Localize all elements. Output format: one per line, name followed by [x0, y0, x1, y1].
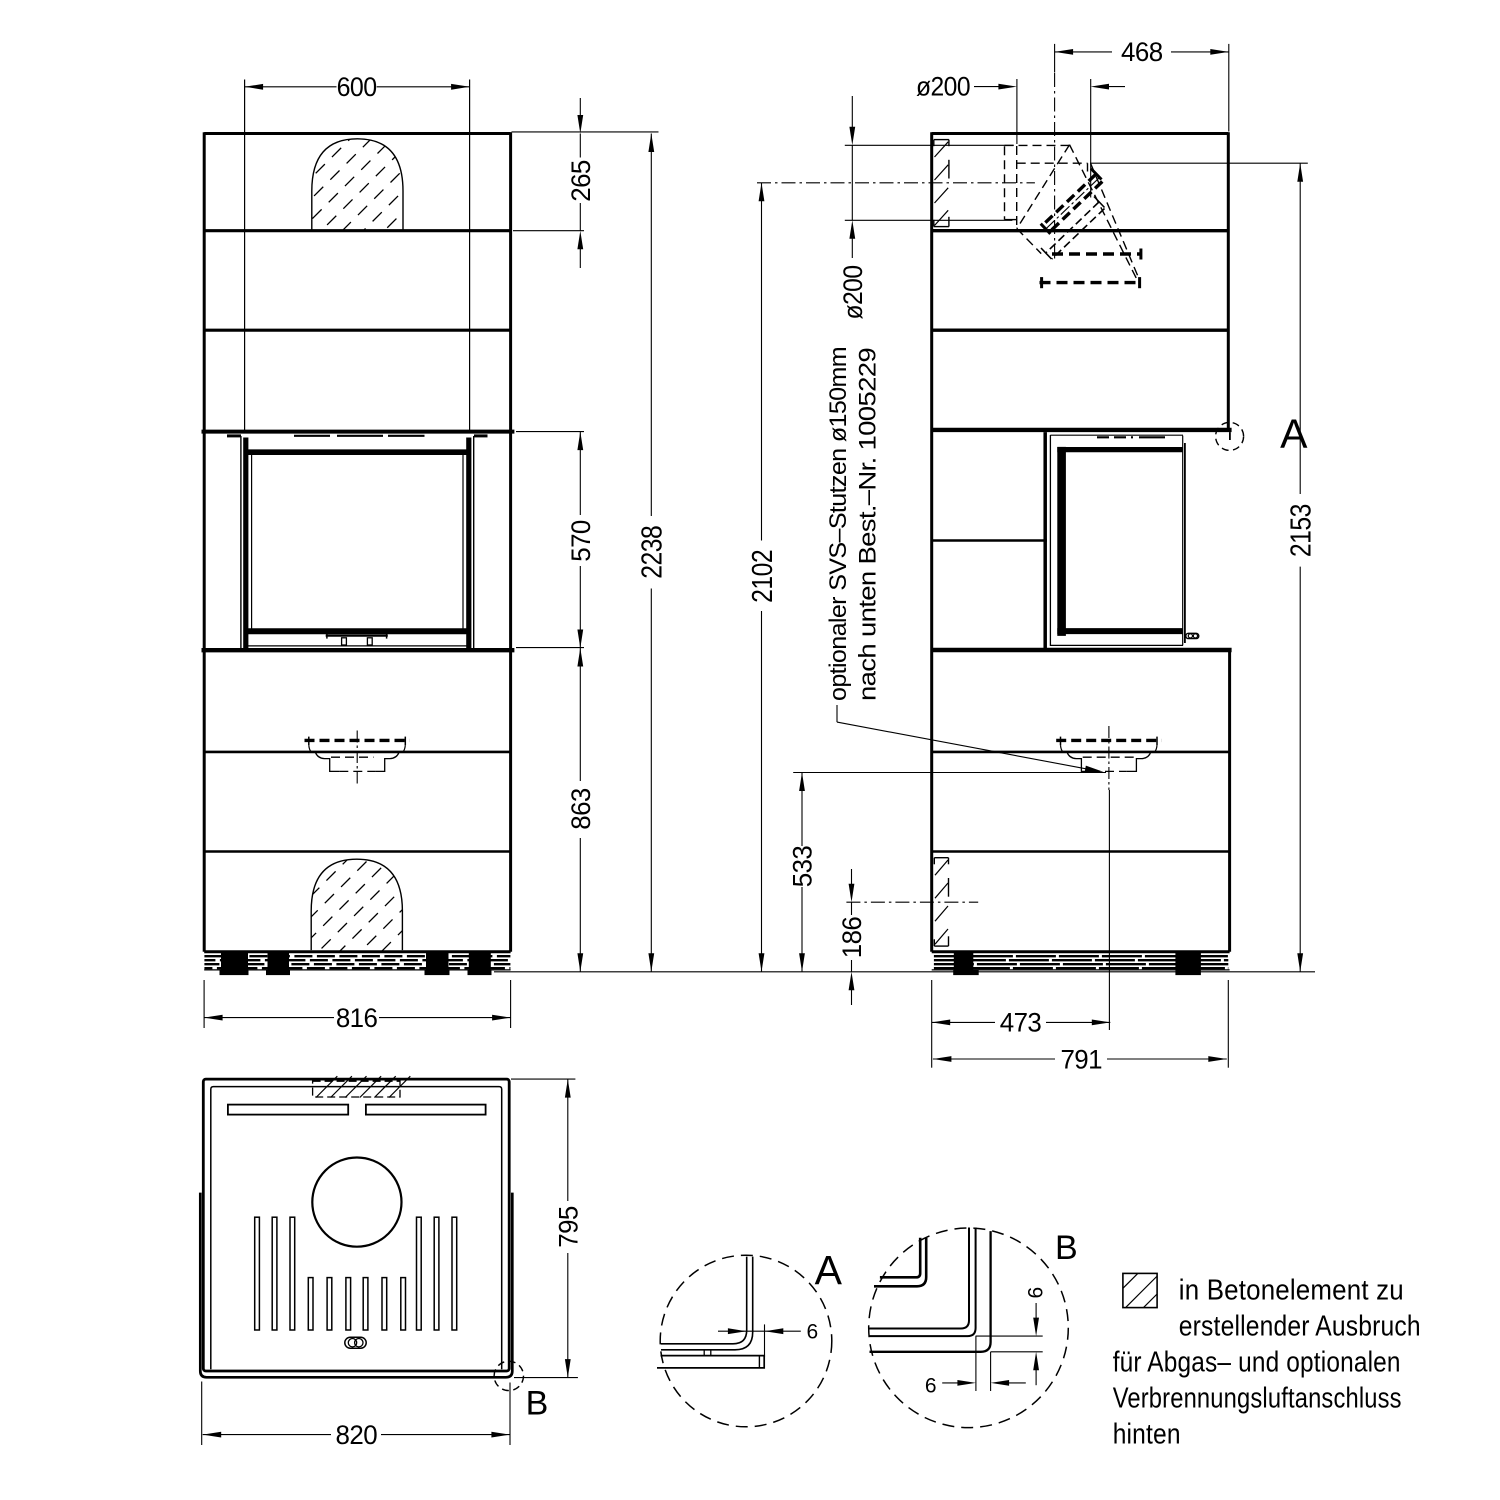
svg-text:hinten: hinten [1113, 1419, 1181, 1451]
svg-text:erstellender Ausbruch: erstellender Ausbruch [1179, 1311, 1421, 1343]
svg-text:in Betonelement zu: in Betonelement zu [1179, 1275, 1404, 1307]
svg-text:2102: 2102 [747, 550, 779, 603]
svg-text:186: 186 [837, 917, 867, 959]
svg-text:265: 265 [566, 160, 596, 202]
svg-text:6: 6 [1025, 1287, 1048, 1298]
svg-text:ø200: ø200 [838, 266, 868, 320]
svg-text:473: 473 [1000, 1008, 1042, 1038]
svg-text:791: 791 [1060, 1044, 1102, 1074]
svg-text:600: 600 [337, 72, 377, 102]
svg-text:A: A [815, 1247, 843, 1293]
svg-text:795: 795 [554, 1206, 584, 1248]
svg-text:2238: 2238 [637, 526, 669, 579]
svg-text:533: 533 [788, 846, 818, 888]
svg-text:570: 570 [566, 520, 596, 562]
svg-text:2153: 2153 [1285, 504, 1317, 557]
svg-text:ø200: ø200 [916, 72, 970, 102]
svg-text:für Abgas– und optionalen: für Abgas– und optionalen [1113, 1347, 1401, 1379]
svg-text:A: A [1280, 410, 1308, 456]
svg-text:optionaler SVS–Stutzen ø150mm: optionaler SVS–Stutzen ø150mm [825, 347, 852, 701]
svg-text:863: 863 [566, 788, 596, 830]
svg-text:B: B [1055, 1229, 1078, 1267]
svg-text:nach unten Best.–Nr. 1005229: nach unten Best.–Nr. 1005229 [855, 348, 882, 701]
svg-text:6: 6 [806, 1320, 817, 1343]
svg-text:Verbrennungsluftanschluss: Verbrennungsluftanschluss [1113, 1383, 1402, 1415]
svg-text:6: 6 [925, 1375, 936, 1398]
svg-text:468: 468 [1121, 37, 1163, 67]
svg-text:816: 816 [336, 1003, 378, 1033]
svg-text:B: B [526, 1384, 549, 1422]
svg-text:820: 820 [336, 1420, 378, 1450]
